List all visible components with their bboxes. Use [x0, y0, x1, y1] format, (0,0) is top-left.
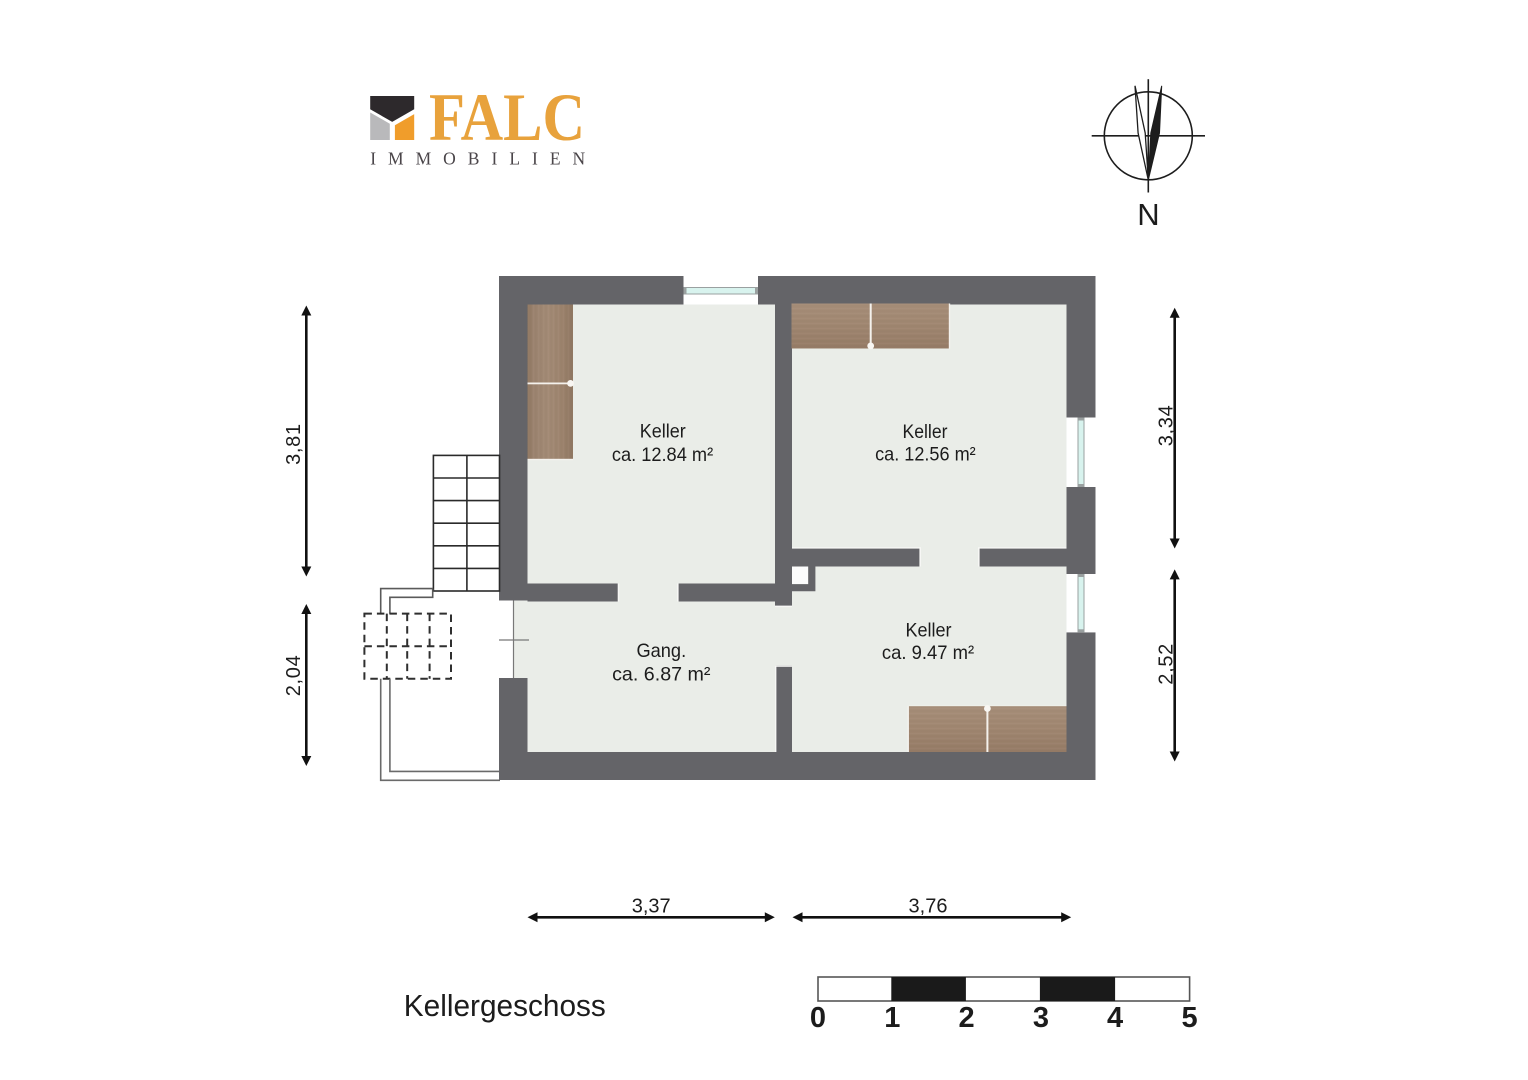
- svg-text:Kellergeschoss: Kellergeschoss: [404, 988, 606, 1023]
- svg-text:ca. 12.84 m²: ca. 12.84 m²: [612, 444, 714, 466]
- svg-text:ca. 12.56 m²: ca. 12.56 m²: [875, 444, 976, 466]
- svg-text:3,76: 3,76: [909, 895, 948, 917]
- svg-text:3,34: 3,34: [1156, 405, 1178, 446]
- svg-text:IMMOBILIEN: IMMOBILIEN: [370, 148, 585, 168]
- svg-text:Keller: Keller: [640, 421, 686, 443]
- svg-text:ca. 6.87 m²: ca. 6.87 m²: [612, 663, 711, 685]
- svg-text:Keller: Keller: [903, 421, 948, 443]
- svg-text:4: 4: [1107, 1002, 1123, 1034]
- svg-text:1: 1: [884, 1002, 900, 1034]
- svg-text:3: 3: [1033, 1002, 1049, 1034]
- svg-text:ca. 9.47 m²: ca. 9.47 m²: [882, 642, 975, 664]
- svg-text:Keller: Keller: [905, 620, 952, 642]
- svg-text:3,81: 3,81: [283, 424, 305, 465]
- svg-text:Gang.: Gang.: [636, 640, 686, 662]
- svg-text:5: 5: [1182, 1002, 1198, 1034]
- svg-text:3,37: 3,37: [632, 895, 671, 917]
- svg-text:2,52: 2,52: [1156, 644, 1178, 685]
- svg-text:FALC: FALC: [429, 79, 585, 155]
- svg-text:N: N: [1137, 197, 1159, 232]
- svg-text:2,04: 2,04: [283, 655, 305, 696]
- svg-text:2: 2: [959, 1002, 975, 1034]
- svg-text:0: 0: [810, 1002, 826, 1034]
